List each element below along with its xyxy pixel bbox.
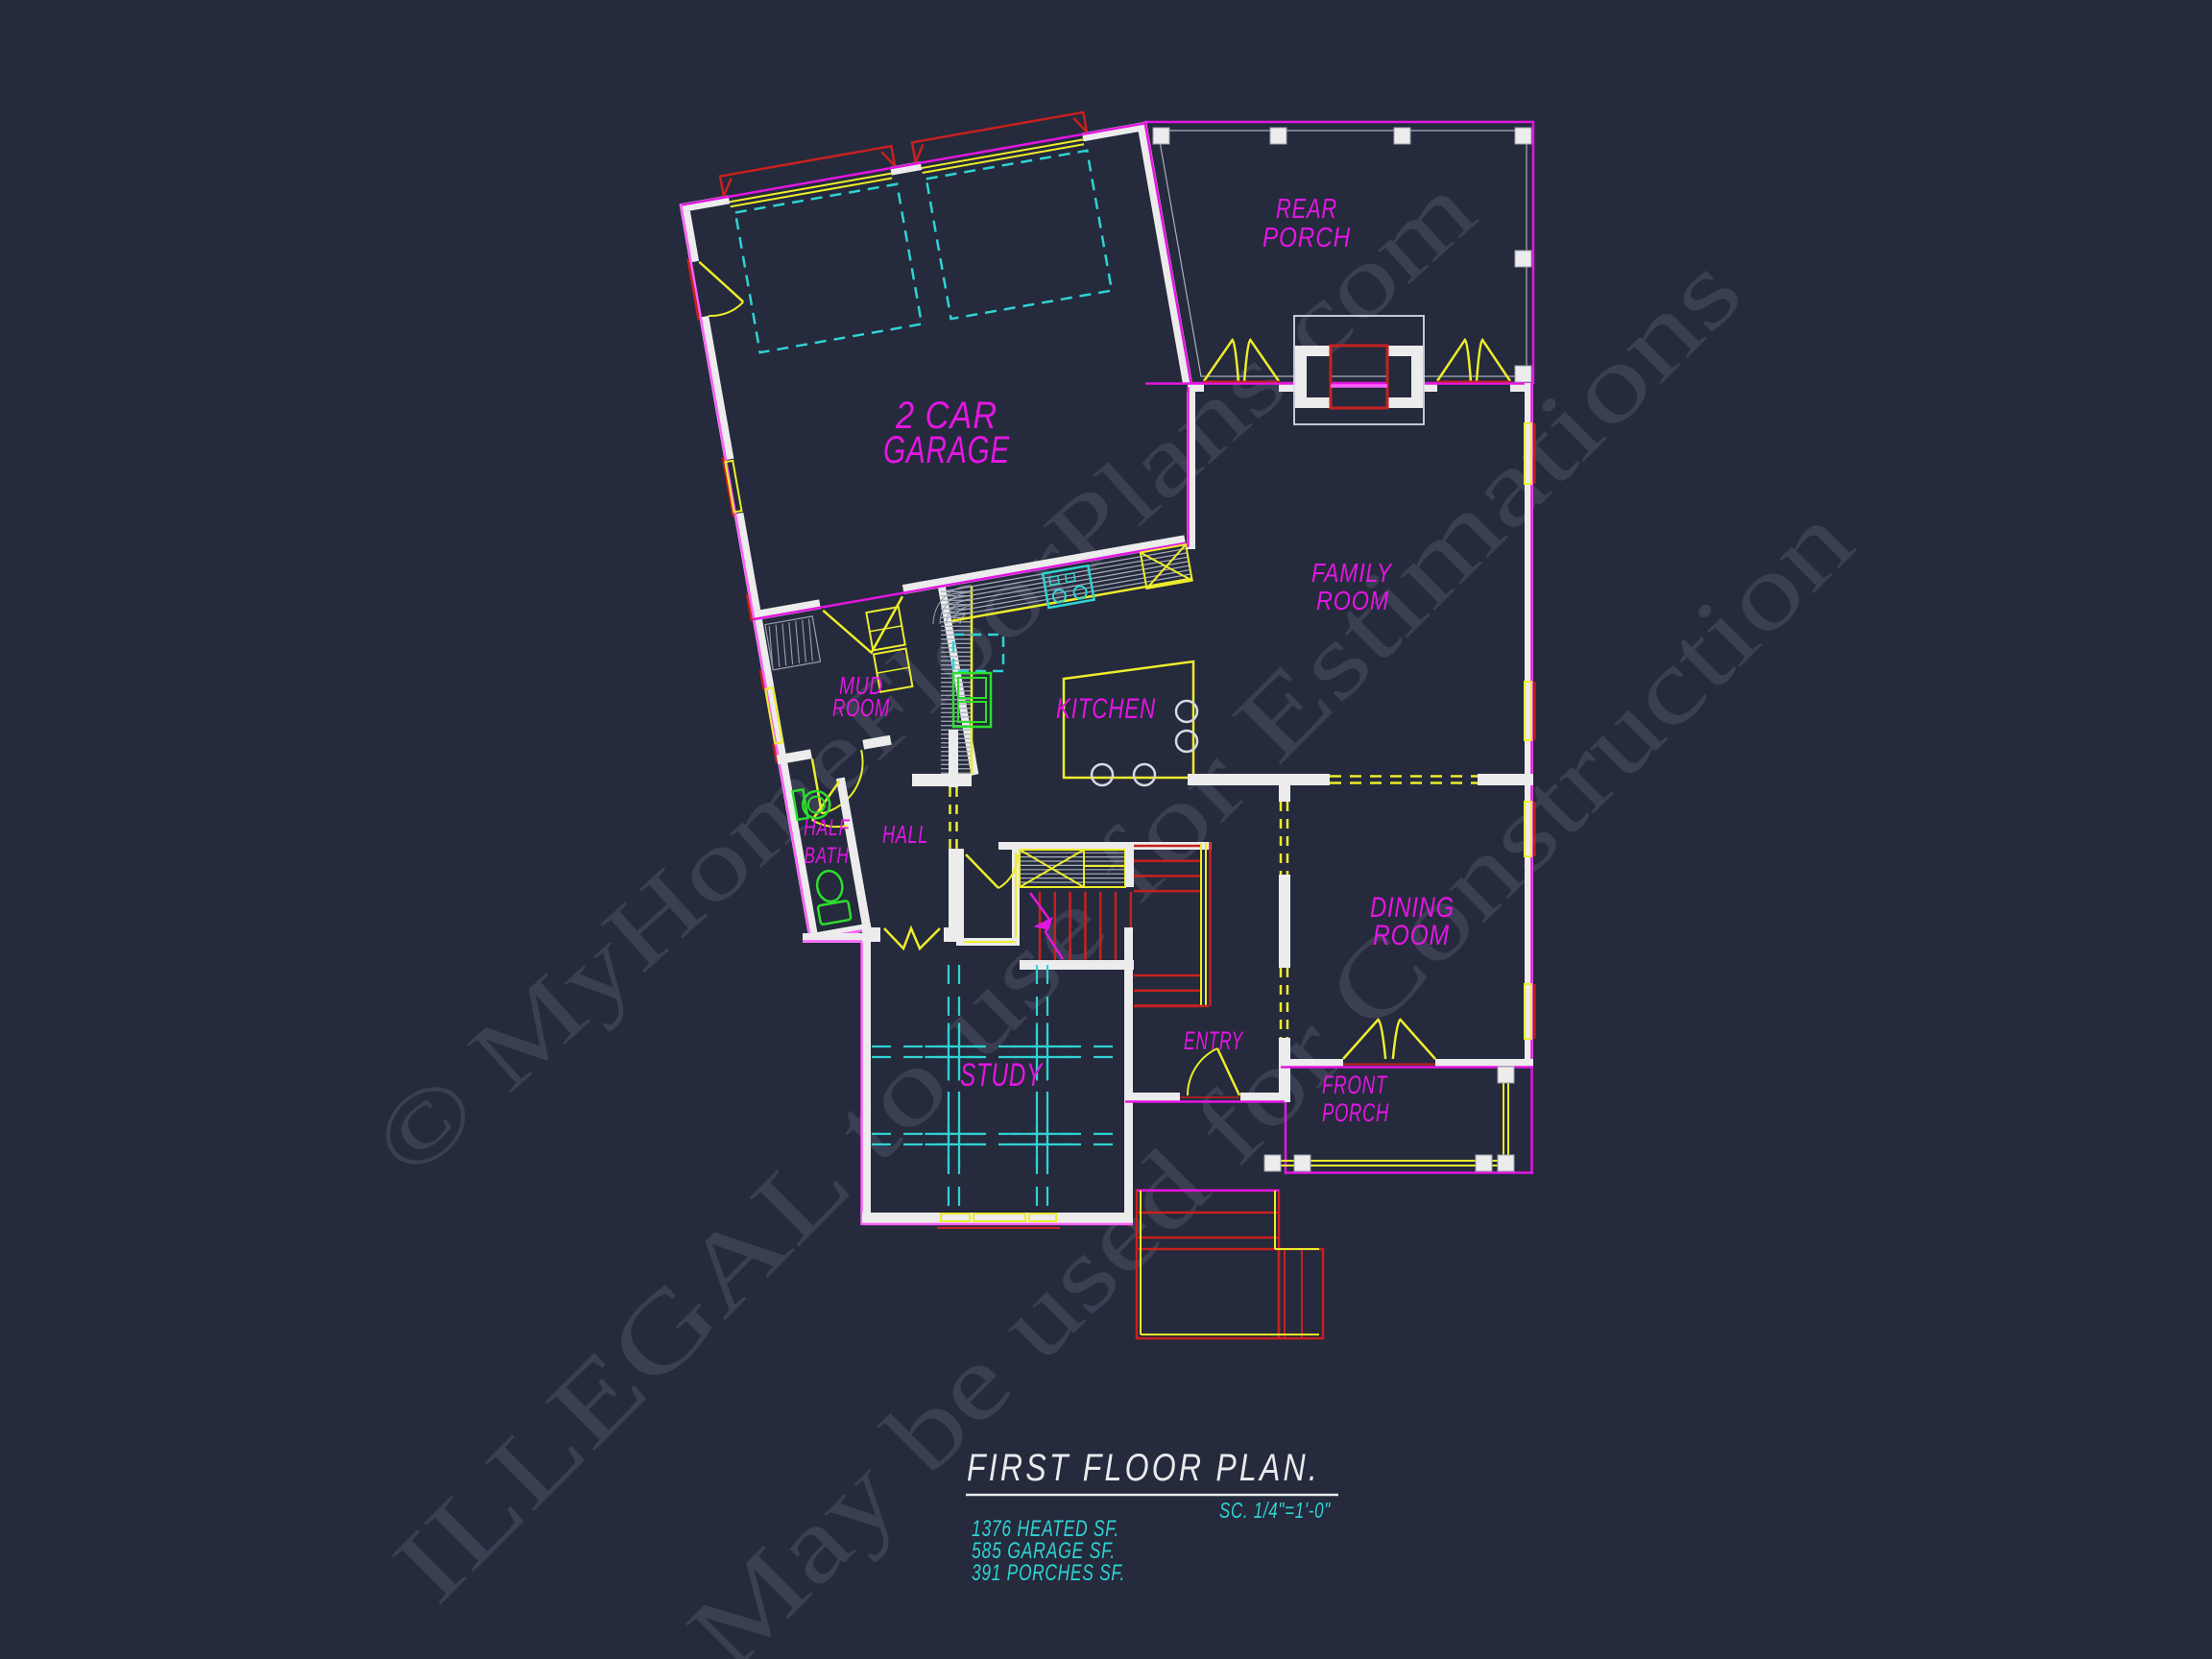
svg-text:REAR: REAR: [1276, 194, 1337, 225]
svg-text:KITCHEN: KITCHEN: [1056, 693, 1156, 725]
svg-text:GARAGE: GARAGE: [883, 429, 1010, 471]
svg-text:ROOM: ROOM: [1373, 920, 1450, 951]
svg-text:HALF: HALF: [804, 815, 850, 841]
svg-text:ROOM: ROOM: [1316, 586, 1389, 615]
svg-text:PORCH: PORCH: [1262, 223, 1351, 253]
svg-text:PORCH: PORCH: [1322, 1098, 1389, 1127]
svg-text:ROOM: ROOM: [832, 693, 890, 722]
svg-text:FRONT: FRONT: [1322, 1070, 1388, 1099]
svg-text:FIRST FLOOR PLAN.: FIRST FLOOR PLAN.: [967, 1447, 1320, 1489]
svg-text:HALL: HALL: [882, 820, 928, 849]
svg-text:BATH: BATH: [805, 843, 850, 869]
svg-text:SC. 1/4"=1'-0": SC. 1/4"=1'-0": [1219, 1498, 1332, 1523]
svg-text:STUDY: STUDY: [960, 1057, 1044, 1094]
svg-text:FAMILY: FAMILY: [1311, 558, 1393, 588]
svg-text:391 PORCHES SF.: 391 PORCHES SF.: [972, 1560, 1125, 1586]
svg-text:ENTRY: ENTRY: [1184, 1026, 1244, 1055]
